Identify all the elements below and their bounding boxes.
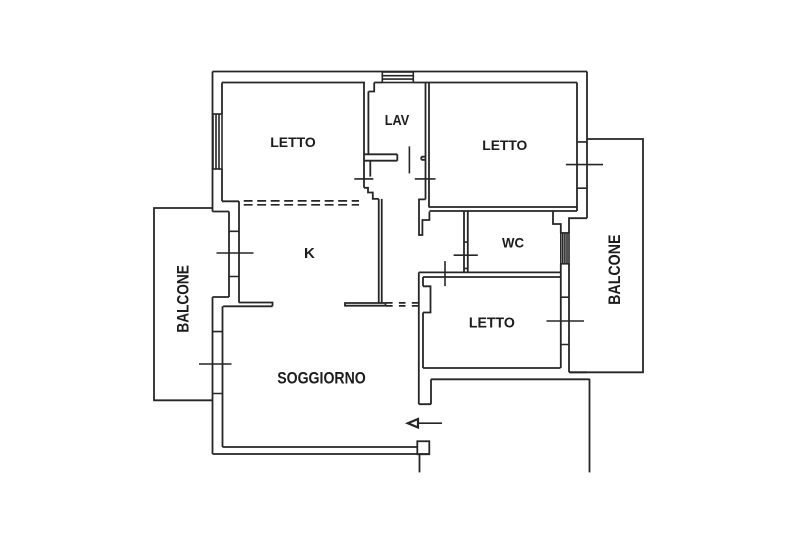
svg-text:LETTO: LETTO — [469, 315, 515, 332]
svg-text:BALCONE: BALCONE — [605, 235, 624, 305]
svg-text:BALCONE: BALCONE — [173, 265, 192, 333]
svg-text:LAV: LAV — [385, 112, 410, 129]
svg-text:SOGGIORNO: SOGGIORNO — [277, 370, 366, 388]
svg-text:LETTO: LETTO — [270, 134, 316, 150]
svg-text:WC: WC — [502, 234, 524, 250]
svg-text:LETTO: LETTO — [482, 137, 527, 153]
svg-text:K: K — [304, 245, 315, 262]
